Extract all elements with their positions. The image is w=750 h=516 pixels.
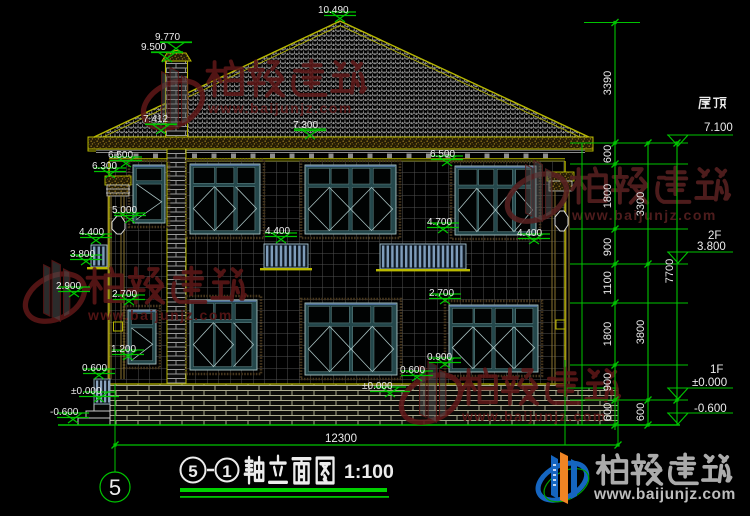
svg-text:-0.600: -0.600 [50,407,79,418]
svg-text:3.800: 3.800 [70,249,95,260]
svg-text:3.800: 3.800 [697,241,726,253]
svg-text:www.baijunjz.com: www.baijunjz.com [87,307,233,323]
svg-text:7700: 7700 [664,259,676,283]
svg-text:1: 1 [222,462,231,481]
svg-text:7.300: 7.300 [293,120,318,131]
svg-text:900: 900 [602,238,614,256]
svg-text:0.600: 0.600 [82,363,107,374]
svg-text:1100: 1100 [602,271,614,295]
svg-text:±0.000: ±0.000 [362,381,393,392]
svg-text:4.400: 4.400 [265,226,290,237]
svg-text:7.412: 7.412 [143,114,168,125]
svg-text:600: 600 [602,403,614,421]
svg-text:12300: 12300 [325,433,357,445]
svg-text:5.000: 5.000 [112,205,137,216]
svg-text:1800: 1800 [602,322,614,346]
svg-text:0.600: 0.600 [400,365,425,376]
svg-text:600: 600 [602,145,614,163]
svg-text:-0.600: -0.600 [694,403,727,415]
svg-text:±0.000: ±0.000 [692,377,727,389]
svg-text:1:100: 1:100 [344,461,394,483]
svg-text:3390: 3390 [602,71,614,95]
svg-text:2.700: 2.700 [429,288,454,299]
svg-text:4.400: 4.400 [79,227,104,238]
svg-text:3300: 3300 [635,192,647,216]
svg-text:1800: 1800 [602,184,614,208]
svg-text:www.baijunjz.com: www.baijunjz.com [461,408,607,424]
svg-text:5: 5 [109,475,121,500]
svg-text:900: 900 [602,373,614,391]
svg-text:2.900: 2.900 [56,281,81,292]
svg-text:5: 5 [188,462,197,481]
svg-text:4.700: 4.700 [427,217,452,228]
svg-text:www.baijunjz.com: www.baijunjz.com [207,100,353,116]
svg-text:9.500: 9.500 [141,42,166,53]
svg-text:6.500: 6.500 [108,150,133,161]
svg-text:±0.000: ±0.000 [71,386,102,397]
svg-text:10.490: 10.490 [318,5,349,16]
svg-text:2.700: 2.700 [112,289,137,300]
svg-text:6.500: 6.500 [430,149,455,160]
svg-text:3800: 3800 [635,320,647,344]
svg-text:1.200: 1.200 [111,344,136,355]
svg-text:www.baijunjz.com: www.baijunjz.com [593,486,736,503]
svg-text:1F: 1F [710,364,723,376]
svg-text:0.900: 0.900 [427,352,452,363]
svg-text:4.400: 4.400 [517,228,542,239]
svg-text:7.100: 7.100 [704,122,733,134]
svg-text:6.300: 6.300 [92,161,117,172]
svg-text:600: 600 [635,403,647,421]
